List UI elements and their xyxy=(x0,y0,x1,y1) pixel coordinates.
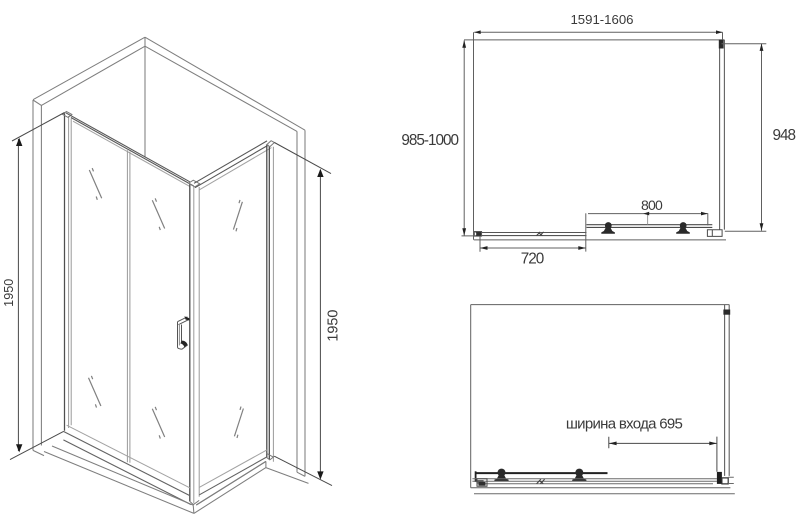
svg-text:948: 948 xyxy=(773,127,796,144)
svg-text:1950: 1950 xyxy=(2,279,16,307)
svg-text:800: 800 xyxy=(641,197,663,213)
svg-text:ширина входа 695: ширина входа 695 xyxy=(566,415,683,432)
svg-text:985-1000: 985-1000 xyxy=(401,132,458,149)
svg-text:720: 720 xyxy=(521,250,544,267)
svg-text:1950: 1950 xyxy=(326,310,342,342)
svg-text:1591-1606: 1591-1606 xyxy=(570,12,633,27)
